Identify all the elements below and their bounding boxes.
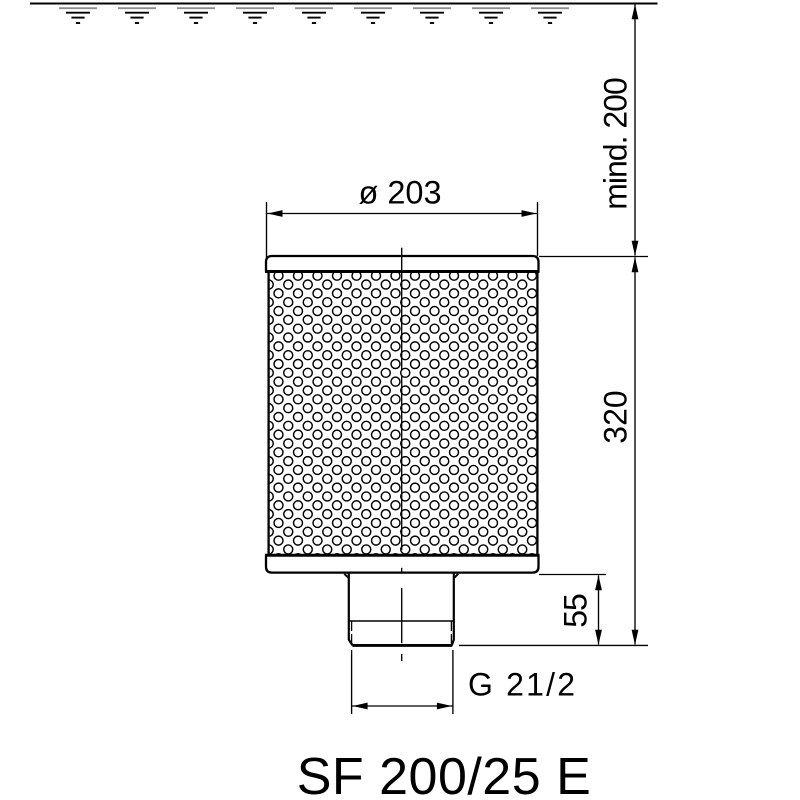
svg-text:320: 320 [598,390,634,443]
svg-text:G 21/2: G 21/2 [468,667,577,703]
svg-text:SF 200/25 E: SF 200/25 E [297,748,592,800]
svg-text:55: 55 [558,594,594,628]
svg-text:mind. 200: mind. 200 [598,78,634,210]
svg-text:ø 203: ø 203 [358,175,441,211]
